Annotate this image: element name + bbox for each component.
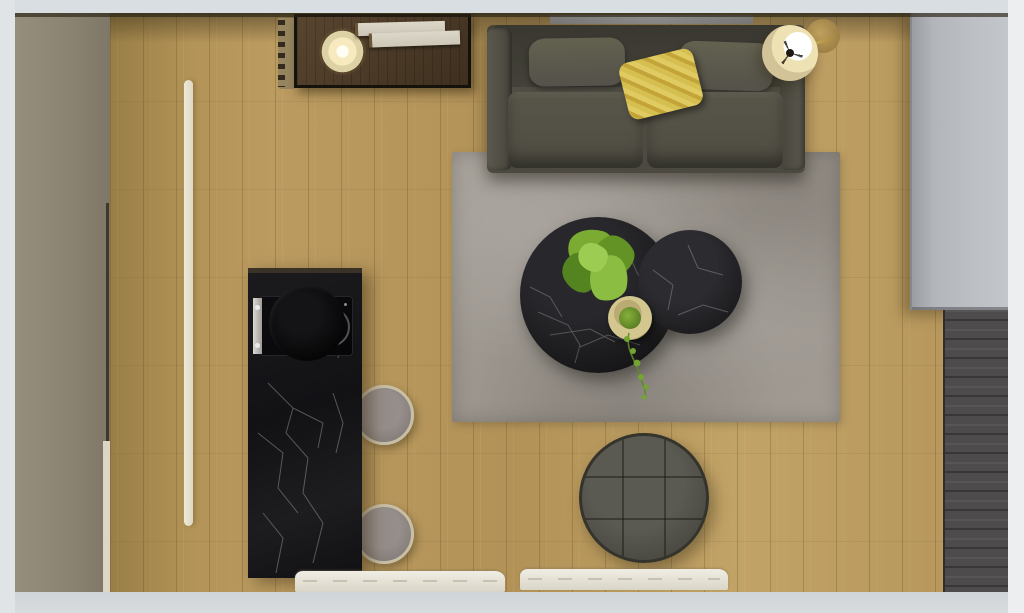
frame-right [1008, 0, 1024, 613]
sideboard [294, 14, 471, 88]
screenshot-canvas [0, 0, 1024, 613]
sofa-seat-cushion [508, 92, 643, 168]
bar-stool [354, 504, 414, 564]
wall-shelf [550, 15, 753, 24]
frame-left [0, 0, 15, 613]
indicator-dot [344, 303, 347, 306]
frame-top [0, 0, 1024, 13]
book [369, 30, 460, 47]
cooktop-pan [269, 285, 345, 361]
sofa [487, 25, 805, 173]
coffee-table-small [638, 230, 742, 334]
marble-veins [638, 230, 742, 334]
control-knob [255, 305, 260, 310]
door-mat [295, 571, 505, 592]
plant-vine [615, 329, 663, 401]
control-knob [255, 343, 260, 348]
wall-skirting [103, 441, 110, 592]
render-scene [15, 13, 1008, 592]
wardrobe-cabinet [910, 13, 1008, 310]
plant-leafy [560, 225, 642, 301]
ottoman [579, 433, 709, 563]
floor-light-strip [184, 80, 193, 526]
floor-lamp-shade [762, 25, 818, 81]
dark-wall-panel [943, 310, 1008, 592]
kitchen-island [248, 268, 362, 578]
left-wall [15, 13, 110, 592]
bar-stool [354, 385, 414, 445]
door-mat [520, 569, 728, 590]
frame-bottom [0, 592, 1024, 613]
sofa-back-pillow [529, 37, 626, 87]
